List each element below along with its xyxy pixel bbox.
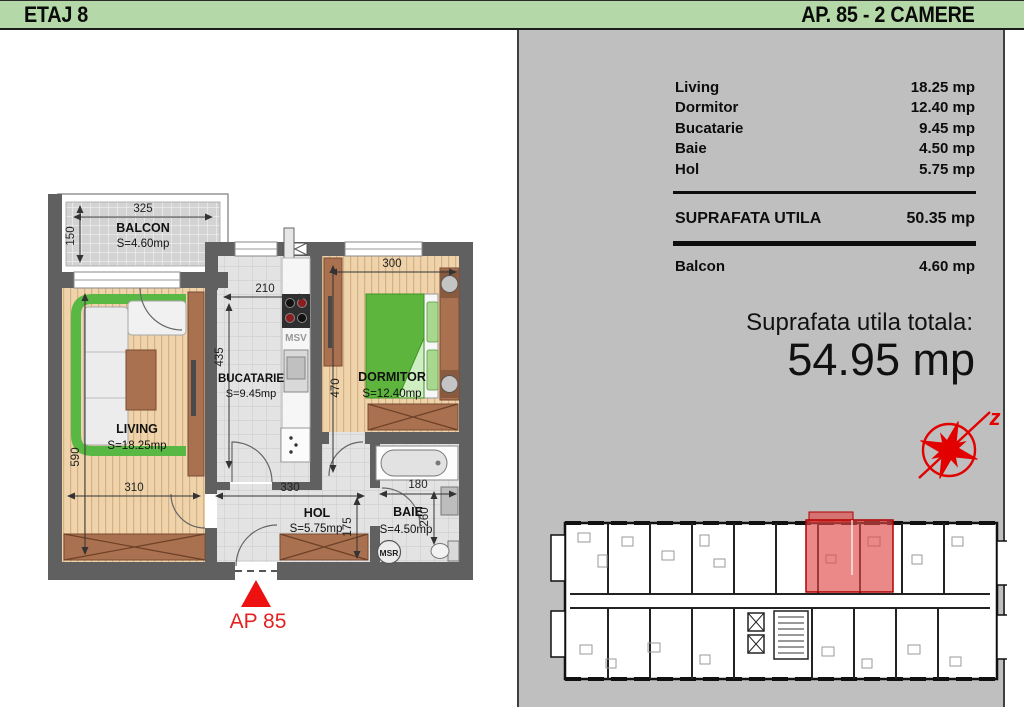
msv-label: MSV [285,333,307,344]
table-row: Dormitor12.40 mp [675,99,975,119]
row-value: 4.50 mp [919,140,975,160]
room-area-bucatarie: S=9.45mp [226,388,276,400]
areas-table: Living18.25 mp Dormitor12.40 mp Bucatari… [675,79,975,181]
room-area-living: S=18.25mp [107,440,166,452]
dim-living-width: 310 [124,482,143,494]
room-label-baie: BAIE [393,505,423,519]
useful-value: 50.35 mp [907,210,975,228]
header-bar: ETAJ 8 AP. 85 - 2 CAMERE [0,0,1024,30]
entrance-label: AP 85 [230,610,287,633]
row-value: 18.25 mp [911,79,975,99]
room-area-dormitor: S=12.40mp [362,388,421,400]
room-area-balcon: S=4.60mp [117,238,170,250]
stair-core [748,611,808,659]
dim-bedroom-width: 300 [382,258,401,270]
bath-sink [441,487,458,515]
row-value: 9.45 mp [919,120,975,140]
stove [282,294,310,328]
row-label: Bucatarie [675,120,743,140]
dim-hall-depth: 175 [342,517,354,536]
dim-balcony-depth: 150 [65,226,77,245]
room-area-baie: S=4.50mp [380,524,433,536]
row-value: 5.75 mp [919,161,975,181]
row-label: Hol [675,161,699,181]
row-label: Living [675,79,719,99]
page: ETAJ 8 AP. 85 - 2 CAMERE [0,0,1024,707]
total-area-label: Suprafata utila totala: [746,309,973,337]
msr-label: MSR [380,548,399,558]
compass-icon: z [900,405,1016,501]
room-label-hol: HOL [304,506,331,520]
room-label-living: LIVING [116,422,158,436]
row-value: 12.40 mp [911,99,975,119]
dim-living-depth: 590 [70,447,82,466]
dim-kitchen-width: 210 [255,283,274,295]
dim-bedroom-depth: 470 [330,378,342,397]
apartment-title: AP. 85 - 2 CAMERE [802,2,975,28]
highlighted-apartment [806,512,893,592]
total-area-value: 54.95 mp [787,334,975,386]
floor-title: ETAJ 8 [24,2,88,28]
table-row: Baie4.50 mp [675,140,975,160]
table-row: Living18.25 mp [675,79,975,99]
entrance-arrow-icon [241,580,271,607]
balcony-value: 4.60 mp [919,258,975,275]
dim-balcony-width: 325 [133,203,152,215]
dim-bath-width: 180 [408,479,427,491]
room-area-hol: S=5.75mp [290,523,343,535]
building-overview [543,508,1007,690]
dim-kitchen-depth: 435 [214,347,226,366]
useful-label: SUPRAFATA UTILA [675,210,821,228]
balcony-label: Balcon [675,258,725,275]
coffee-table [126,350,156,410]
floor-plan: 325 150 210 300 435 470 590 310 330 180 … [0,30,517,707]
entrance-marker: AP 85 [230,580,287,633]
floorplan-pane: 325 150 210 300 435 470 590 310 330 180 … [0,30,517,707]
table-row: Hol5.75 mp [675,161,975,181]
divider-thin [673,191,976,194]
room-label-dormitor: DORMITOR [358,370,426,384]
room-label-balcon: BALCON [116,221,169,235]
room-label-bucatarie: BUCATARIE [218,373,284,385]
compass-north-letter: z [989,405,1001,430]
toilet [448,541,459,561]
row-label: Baie [675,140,707,160]
info-pane: Living18.25 mp Dormitor12.40 mp Bucatari… [517,30,1005,707]
dim-hall-width: 330 [280,482,299,494]
table-row: Bucatarie9.45 mp [675,120,975,140]
entrance [235,562,277,580]
useful-area-row: SUPRAFATA UTILA 50.35 mp [675,210,975,228]
row-label: Dormitor [675,99,738,119]
divider-thick [673,241,976,246]
balcony-row: Balcon 4.60 mp [675,258,975,275]
